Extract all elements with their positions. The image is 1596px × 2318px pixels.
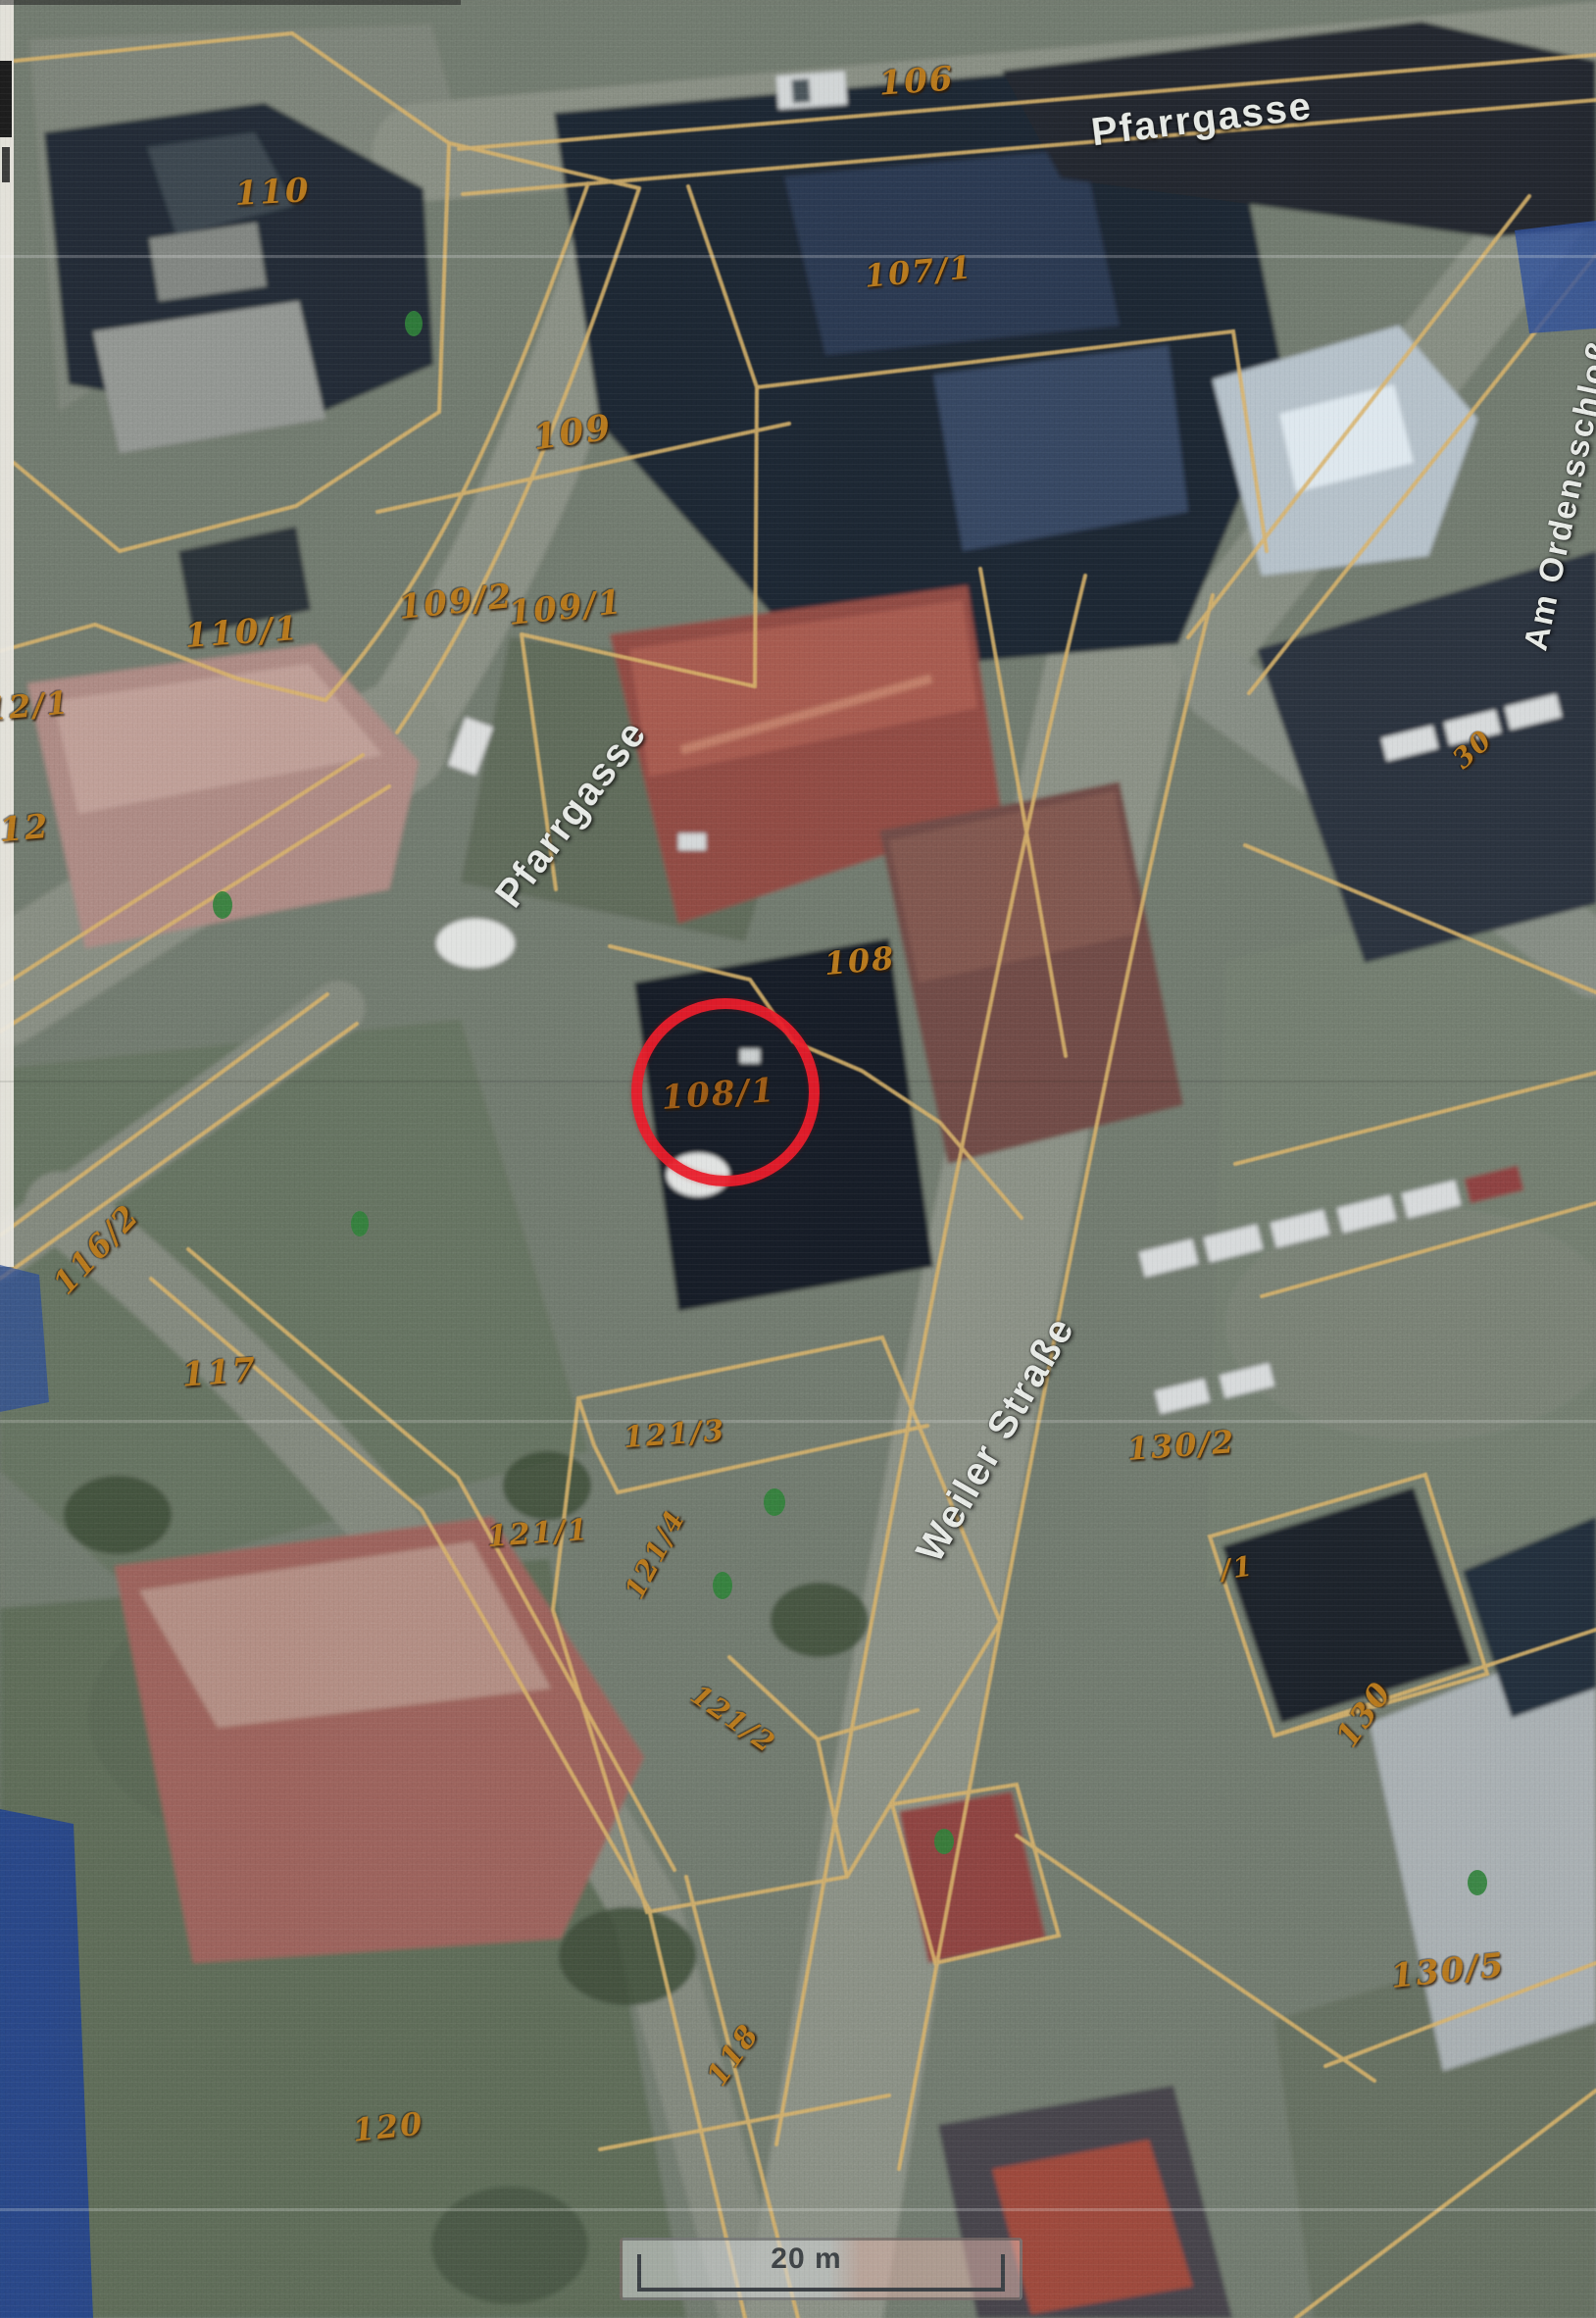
parcel-label-12: 12 xyxy=(0,807,51,850)
parcel-label-121-1: 121/1 xyxy=(486,1513,591,1554)
parcel-label-121-3: 121/3 xyxy=(623,1414,727,1455)
parcel-label-12-1: 12/1 xyxy=(0,683,72,728)
scale-bar: 20 m xyxy=(620,2238,1022,2300)
grain-overlay xyxy=(0,0,1596,2318)
highlight-circle xyxy=(631,998,820,1186)
parcel-label-130-2: 130/2 xyxy=(1125,1423,1236,1468)
parcel-label-117: 117 xyxy=(180,1350,259,1394)
parcel-label-110: 110 xyxy=(234,171,312,214)
map-stage: 106 110 107/1 109 109/2 109/1 110/1 12/1… xyxy=(0,0,1596,2318)
scale-bar-label: 20 m xyxy=(623,2242,990,2276)
parcel-label-1: /1 xyxy=(1219,1549,1256,1586)
parcel-label-108: 108 xyxy=(823,939,897,983)
aerial-photo-basemap xyxy=(0,0,1596,2318)
parcel-label-106: 106 xyxy=(877,59,956,103)
parcel-label-120: 120 xyxy=(351,2104,425,2148)
parcel-label-110-1: 110/1 xyxy=(183,609,301,656)
